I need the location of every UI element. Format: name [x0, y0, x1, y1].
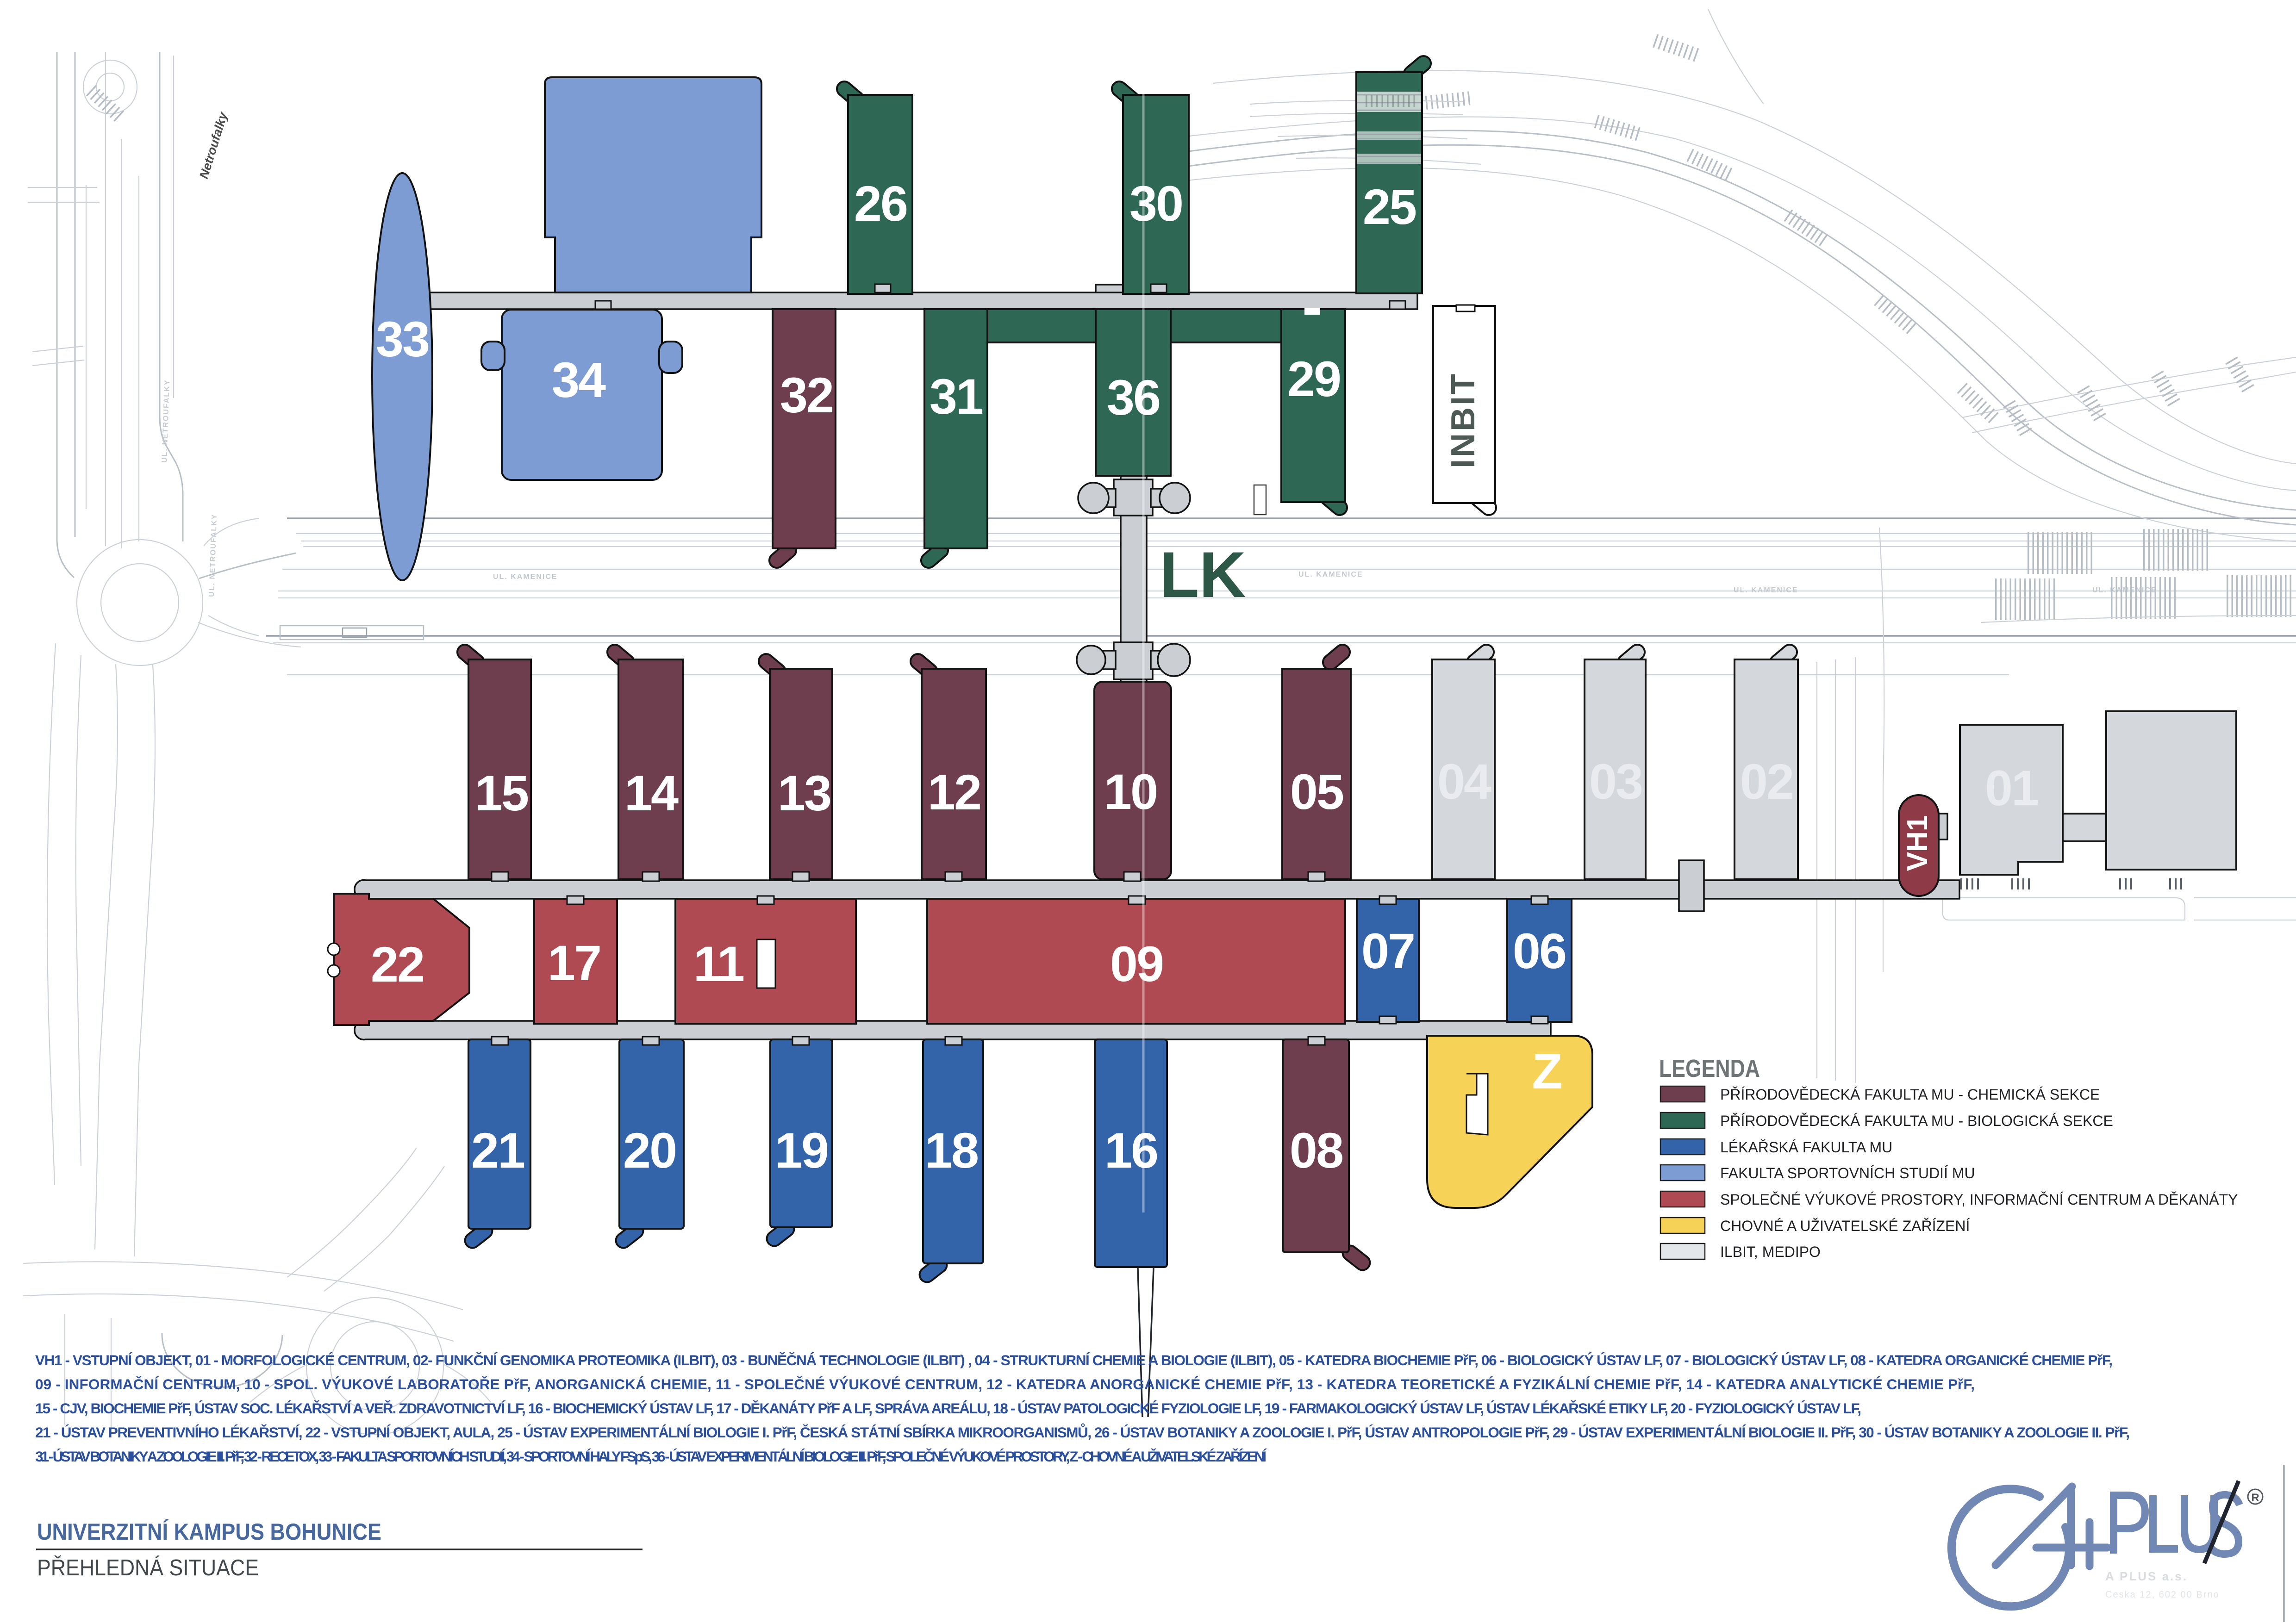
- svg-text:15 - CJV, BIOCHEMIE PřF, ÚSTAV: 15 - CJV, BIOCHEMIE PřF, ÚSTAV SOC. LÉKA…: [35, 1400, 1861, 1417]
- svg-text:PŘÍRODOVĚDECKÁ FAKULTA MU - BI: PŘÍRODOVĚDECKÁ FAKULTA MU - BIOLOGICKÁ S…: [1720, 1113, 2113, 1129]
- svg-text:VH1: VH1: [1902, 815, 1934, 871]
- svg-text:31: 31: [930, 368, 983, 424]
- svg-text:16: 16: [1104, 1122, 1157, 1178]
- svg-text:Ceska 12, 602 00 Brno: Ceska 12, 602 00 Brno: [2105, 1590, 2220, 1600]
- svg-text:05: 05: [1290, 764, 1343, 820]
- svg-text:32: 32: [780, 367, 833, 423]
- svg-text:04: 04: [1437, 753, 1491, 809]
- svg-text:09 - INFORMAČNÍ CENTRUM, 10 -: 09 - INFORMAČNÍ CENTRUM, 10 - SPOL. VÝUK…: [35, 1376, 1975, 1393]
- svg-text:FAKULTA SPORTOVNÍCH STUDIÍ MU: FAKULTA SPORTOVNÍCH STUDIÍ MU: [1720, 1165, 1975, 1181]
- svg-text:LK: LK: [1160, 538, 1246, 611]
- svg-text:18: 18: [925, 1122, 978, 1178]
- svg-text:UL. KAMENICE: UL. KAMENICE: [1734, 586, 1798, 594]
- svg-text:25: 25: [1363, 179, 1416, 235]
- svg-text:21: 21: [471, 1122, 524, 1178]
- svg-text:UL. KAMENICE: UL. KAMENICE: [2092, 586, 2157, 594]
- svg-text:PŘEHLEDNÁ SITUACE: PŘEHLEDNÁ SITUACE: [37, 1555, 259, 1580]
- svg-text:34: 34: [552, 352, 606, 408]
- svg-text:30: 30: [1129, 175, 1182, 231]
- svg-text:07: 07: [1361, 923, 1414, 979]
- svg-text:PŘÍRODOVĚDECKÁ FAKULTA MU - CH: PŘÍRODOVĚDECKÁ FAKULTA MU - CHEMICKÁ SEK…: [1720, 1086, 2100, 1103]
- svg-text:29: 29: [1287, 351, 1340, 407]
- svg-text:36: 36: [1107, 369, 1160, 425]
- svg-text:33: 33: [376, 311, 429, 367]
- svg-text:LEGENDA: LEGENDA: [1659, 1055, 1760, 1082]
- svg-text:12: 12: [928, 764, 980, 820]
- svg-text:26: 26: [854, 175, 907, 231]
- svg-text:10: 10: [1104, 764, 1157, 820]
- svg-text:LÉKAŘSKÁ FAKULTA MU: LÉKAŘSKÁ FAKULTA MU: [1720, 1139, 1892, 1156]
- svg-text:R: R: [2251, 1492, 2259, 1504]
- svg-text:21 - ÚSTAV PREVENTIVNÍHO LÉKAŘ: 21 - ÚSTAV PREVENTIVNÍHO LÉKAŘSTVÍ, 22 -…: [35, 1423, 2130, 1441]
- svg-text:02: 02: [1740, 753, 1793, 809]
- svg-text:UL. KAMENICE: UL. KAMENICE: [1298, 571, 1363, 578]
- svg-text:ILBIT, MEDIPO: ILBIT, MEDIPO: [1720, 1244, 1821, 1260]
- svg-text:15: 15: [475, 765, 528, 821]
- svg-text:01: 01: [1985, 760, 2038, 816]
- svg-text:31 - ÚSTAV BOTANIKY A ZOOLOGIE: 31 - ÚSTAV BOTANIKY A ZOOLOGIE III. PřF,…: [35, 1448, 1267, 1465]
- svg-text:CHOVNÉ A UŽIVATELSKÉ ZAŘÍZENÍ: CHOVNÉ A UŽIVATELSKÉ ZAŘÍZENÍ: [1720, 1218, 1970, 1234]
- svg-text:03: 03: [1589, 753, 1642, 809]
- svg-text:A PLUS a.s.: A PLUS a.s.: [2105, 1569, 2188, 1583]
- svg-text:06: 06: [1513, 923, 1566, 979]
- svg-text:VH1 - VSTUPNÍ OBJEKT, 01 - MOR: VH1 - VSTUPNÍ OBJEKT, 01 - MORFOLOGICKÉ …: [35, 1352, 2113, 1368]
- svg-text:08: 08: [1290, 1122, 1342, 1178]
- svg-text:14: 14: [624, 765, 679, 821]
- svg-text:UNIVERZITNÍ KAMPUS BOHUNICE: UNIVERZITNÍ KAMPUS BOHUNICE: [37, 1519, 381, 1545]
- svg-text:SPOLEČNÉ VÝUKOVÉ PROSTORY, INF: SPOLEČNÉ VÝUKOVÉ PROSTORY, INFORMAČNÍ CE…: [1720, 1191, 2238, 1208]
- svg-text:UL. KAMENICE: UL. KAMENICE: [493, 573, 558, 581]
- svg-text:Z: Z: [1532, 1043, 1561, 1099]
- svg-text:19: 19: [775, 1122, 828, 1178]
- svg-text:INBIT: INBIT: [1445, 372, 1482, 468]
- svg-text:22: 22: [371, 936, 424, 992]
- svg-text:11: 11: [693, 936, 744, 992]
- svg-text:13: 13: [778, 765, 830, 821]
- svg-text:09: 09: [1110, 936, 1163, 992]
- svg-text:20: 20: [623, 1122, 676, 1178]
- svg-text:17: 17: [548, 935, 600, 991]
